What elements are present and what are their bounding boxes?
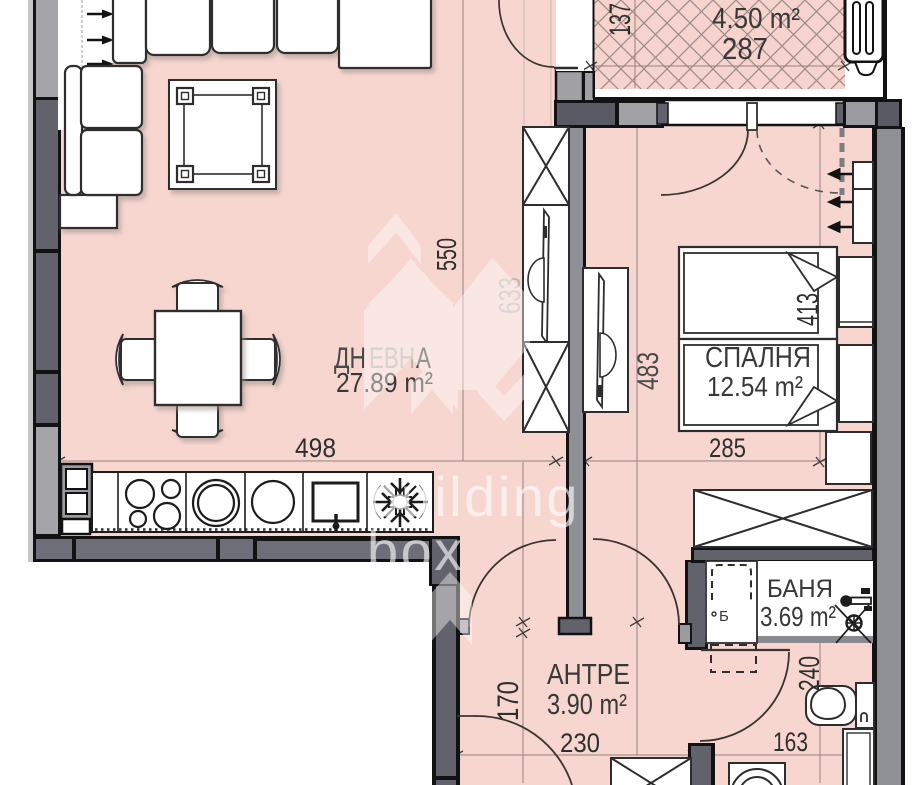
svg-text:287: 287 bbox=[722, 31, 768, 66]
svg-text:170: 170 bbox=[492, 681, 525, 721]
svg-text:285: 285 bbox=[709, 433, 746, 463]
svg-text:3.69 m²: 3.69 m² bbox=[760, 601, 836, 632]
svg-text:498: 498 bbox=[295, 433, 336, 463]
svg-text:СПАЛНЯ: СПАЛНЯ bbox=[705, 342, 811, 374]
svg-text:АНТРЕ: АНТРЕ bbox=[547, 659, 630, 691]
svg-text:230: 230 bbox=[560, 728, 600, 758]
svg-text:12.54 m²: 12.54 m² bbox=[707, 371, 803, 402]
svg-text:Б: Б bbox=[719, 608, 729, 625]
svg-text:БАНЯ: БАНЯ bbox=[767, 575, 833, 603]
svg-text:3.90 m²: 3.90 m² bbox=[547, 689, 627, 721]
svg-text:box: box bbox=[367, 519, 465, 582]
svg-text:163: 163 bbox=[773, 727, 808, 757]
svg-text:550: 550 bbox=[431, 238, 462, 271]
svg-text:240: 240 bbox=[794, 656, 826, 691]
svg-text:483: 483 bbox=[632, 352, 665, 390]
svg-text:137: 137 bbox=[604, 3, 637, 36]
svg-text:413: 413 bbox=[790, 293, 825, 326]
